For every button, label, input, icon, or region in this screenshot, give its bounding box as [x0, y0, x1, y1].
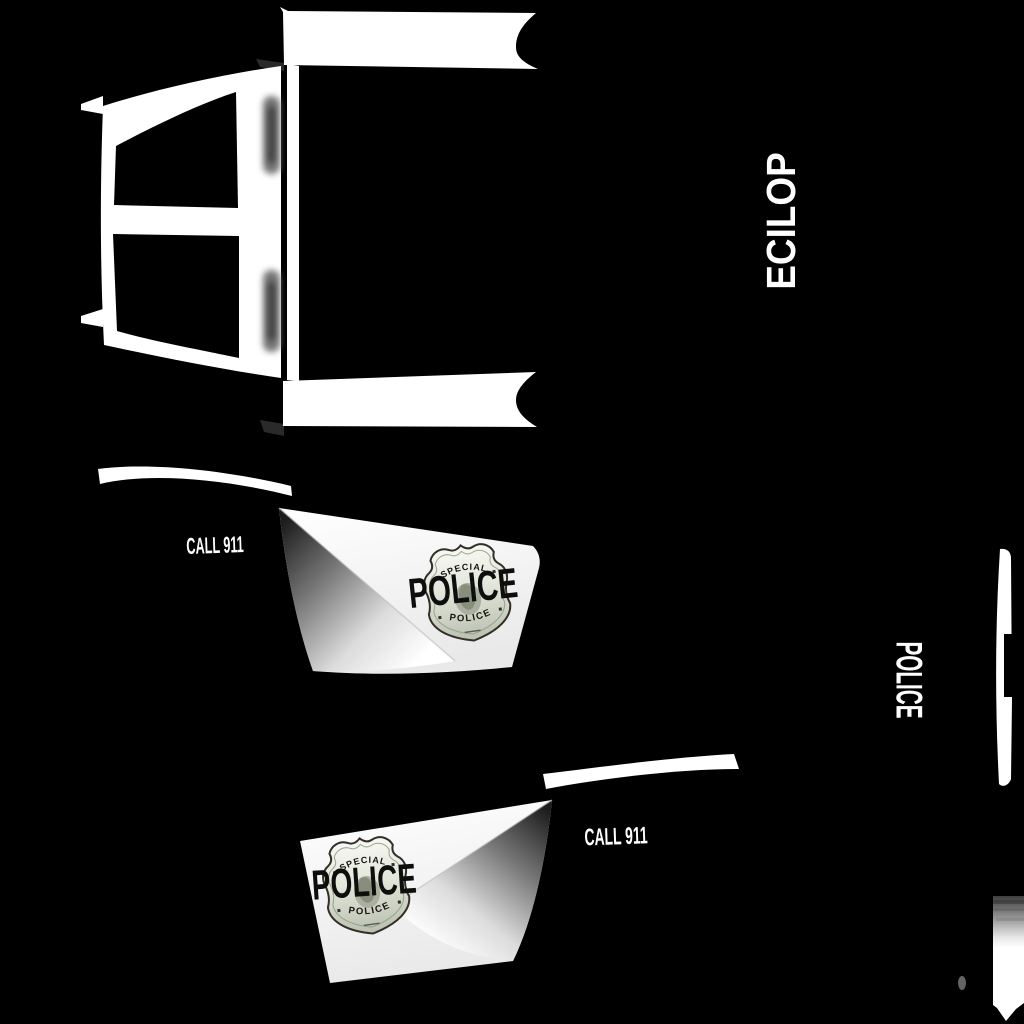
rocker-panel-streak	[993, 908, 1024, 911]
call-911-front: CALL 911	[186, 531, 244, 559]
rocker-panel-streak	[993, 900, 1024, 904]
hood-strip-bottom	[283, 372, 537, 427]
rocker-panel-bar	[993, 896, 1024, 1021]
hood-strip-top	[280, 7, 538, 69]
texture-canvas: SPECIAL POLICE ECILOP CALL 911	[0, 0, 1024, 1024]
call-911-rear: CALL 911	[584, 822, 648, 851]
rocker-panel-streak	[996, 918, 1024, 921]
paint-speck	[958, 976, 966, 990]
side-mirror-strip-cutout	[1004, 634, 1012, 697]
roof-edge-strip	[287, 64, 299, 381]
side-text-police: POLICE	[888, 641, 929, 718]
police-livery-texture: SPECIAL POLICE ECILOP CALL 911	[0, 0, 1024, 1024]
rear-door-police-text: POLICE	[310, 855, 418, 909]
door-hinge-mark-upper-core	[266, 106, 277, 164]
door-hinge-mark-lower-core	[266, 281, 277, 341]
side-text-police-mirrored: ECILOP	[759, 152, 804, 289]
